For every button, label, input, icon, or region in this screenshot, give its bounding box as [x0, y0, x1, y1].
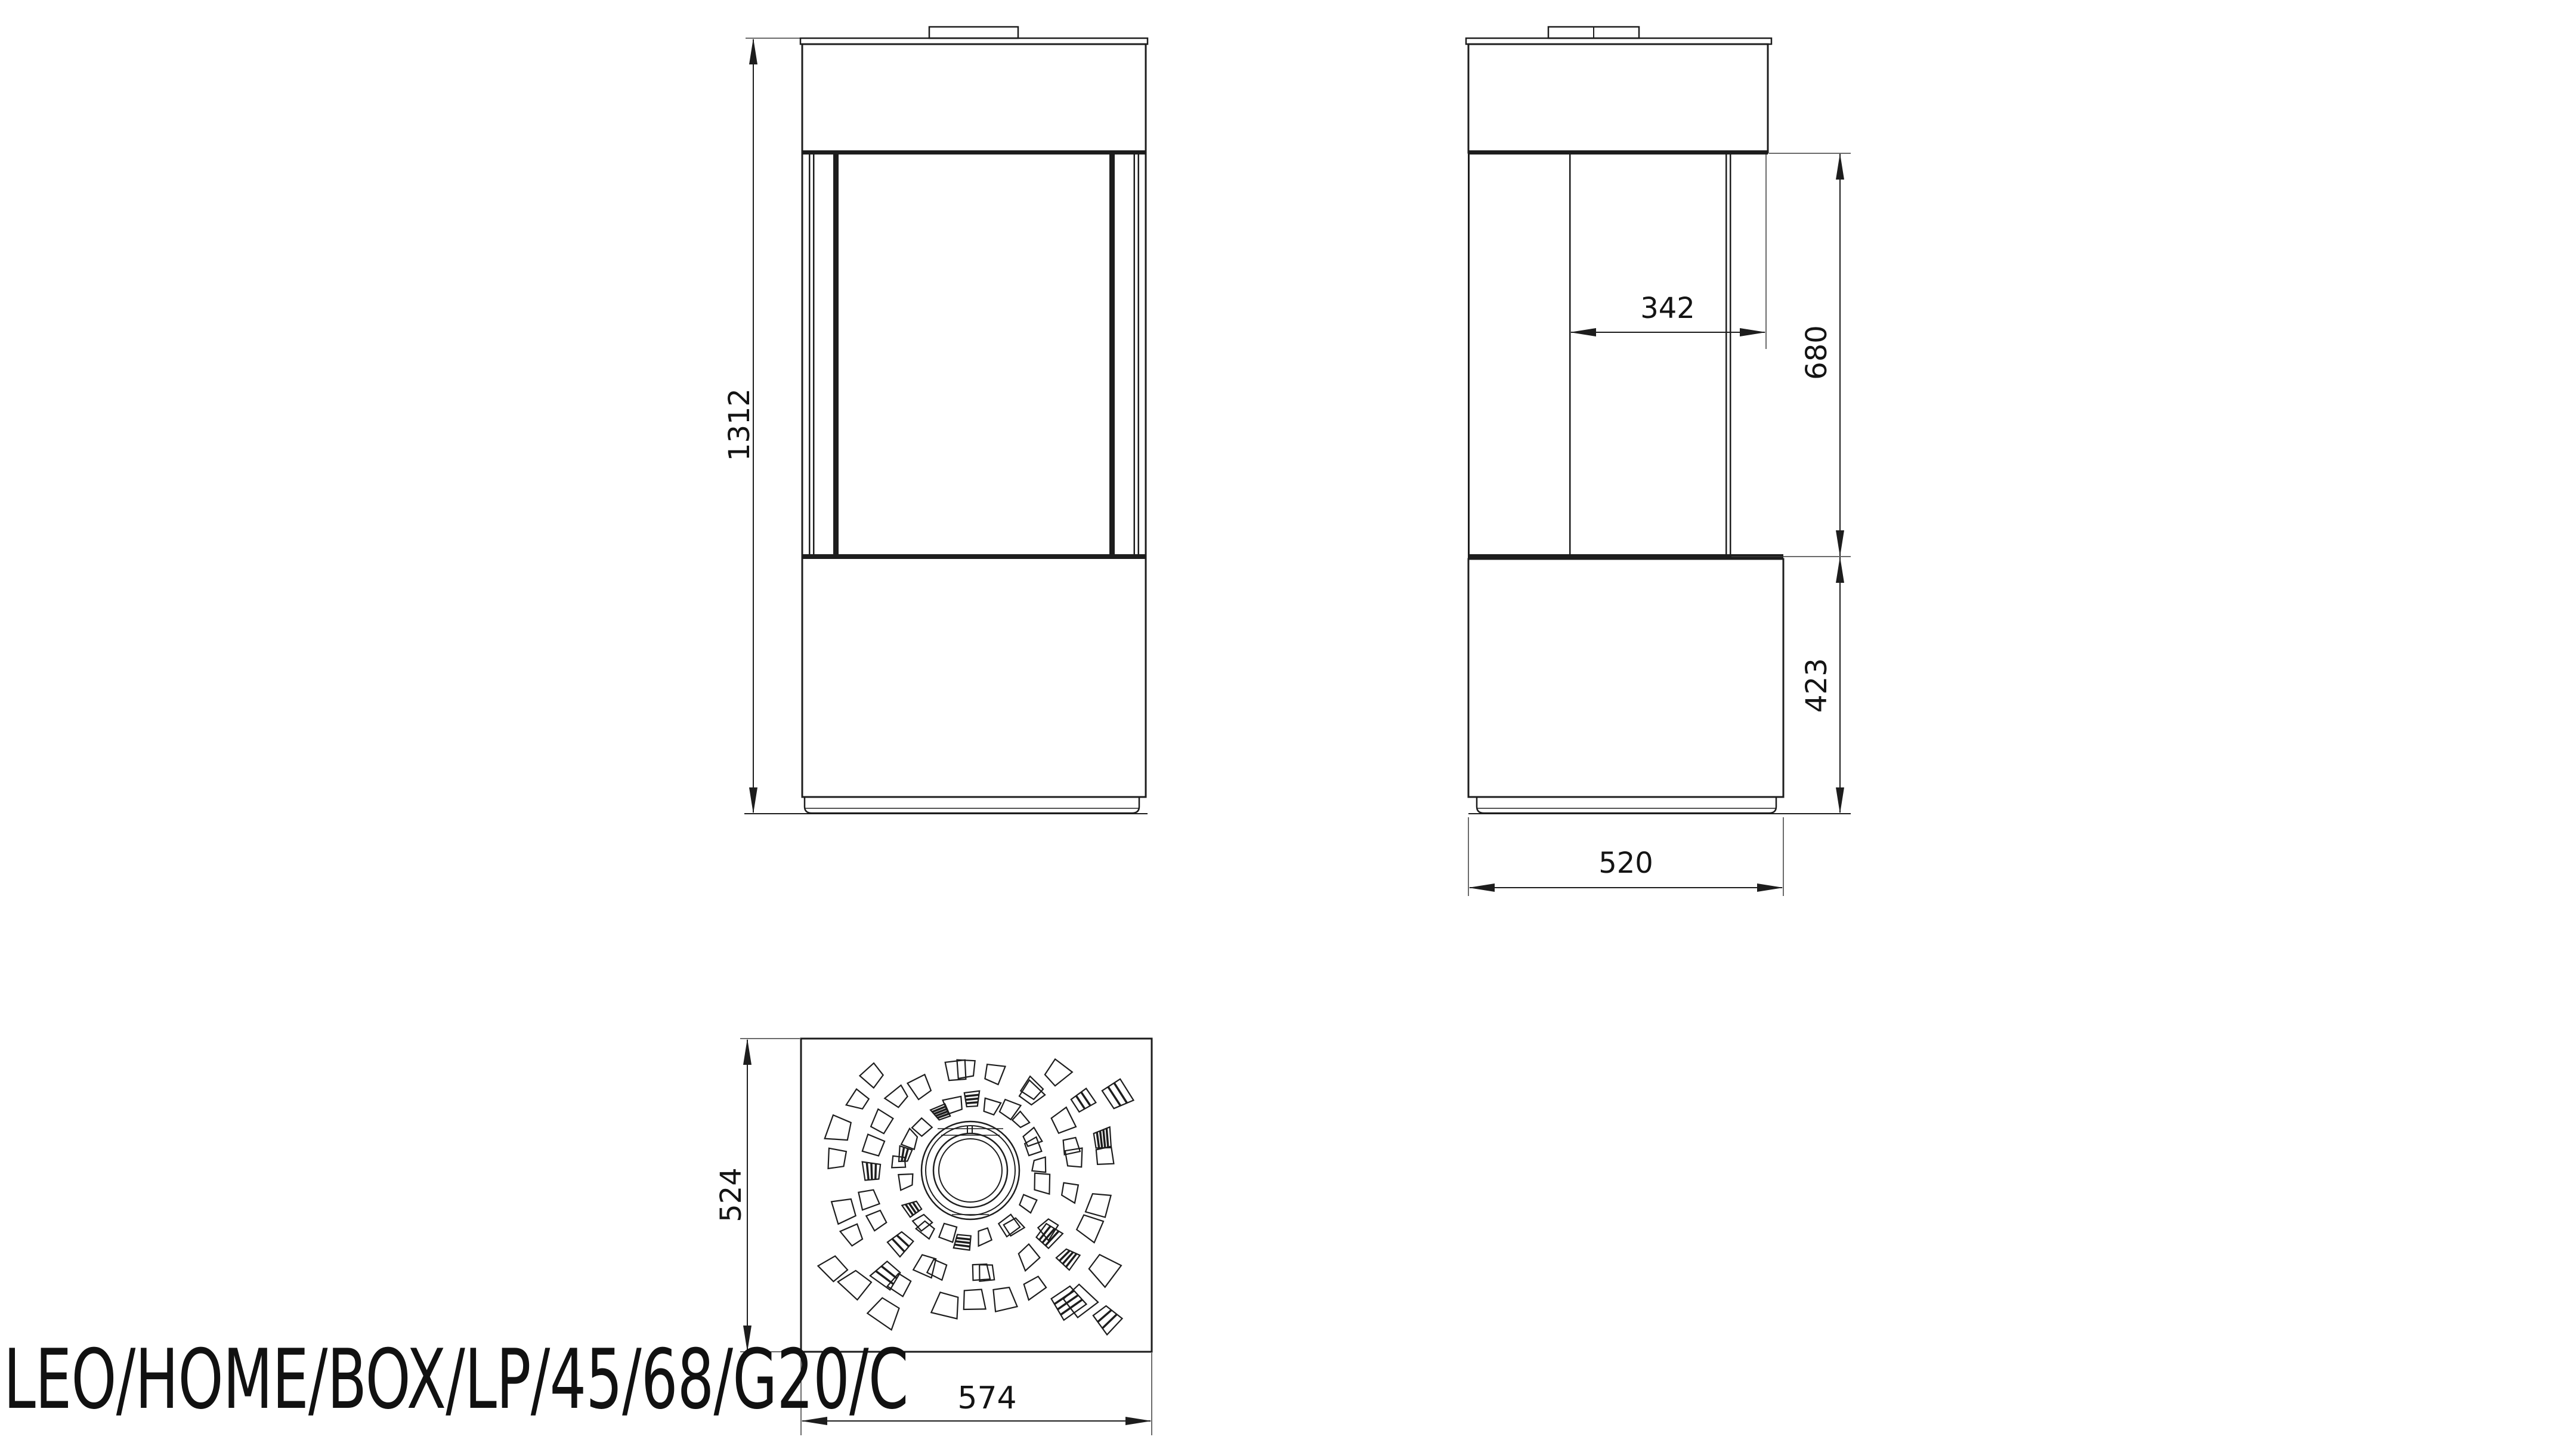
door-frame-strips [809, 155, 1139, 554]
lower-box-side [1468, 559, 1783, 797]
side-view [1466, 27, 1851, 896]
divider-front [803, 150, 1145, 155]
dim-label-base-height: 423 [1802, 658, 1831, 713]
dim-342 [1570, 328, 1766, 336]
upper-box-side [1468, 44, 1768, 153]
divider-side [1469, 150, 1768, 155]
dim-label-glass-height: 680 [1802, 325, 1831, 380]
drawing-sheet: 1312 342 680 423 520 524 574 LEO/HOME/BO… [0, 0, 2576, 1449]
plinth-side [1477, 797, 1776, 813]
dim-520 [1468, 883, 1783, 892]
dim-label-body-depth: 520 [1598, 849, 1653, 878]
perforation-sunburst [818, 1059, 1134, 1334]
flue-collar-front [929, 27, 1018, 38]
flue-outlet-circles [921, 1121, 1019, 1219]
dim-label-top-depth: 524 [717, 1167, 746, 1222]
dim-label-firebox-depth: 342 [1640, 294, 1695, 323]
technical-drawing [0, 0, 2576, 1449]
front-view [744, 27, 1148, 814]
dim-680 [1836, 153, 1844, 557]
dim-label-top-width: 574 [957, 1383, 1016, 1414]
plinth-front [805, 797, 1139, 813]
model-title: LEO/HOME/BOX/LP/45/68/G20/C [4, 1339, 908, 1421]
dim-423 [1836, 557, 1844, 814]
top-plate-outline [801, 1039, 1152, 1352]
door-bottom-front [803, 554, 1145, 559]
body-front [802, 44, 1146, 797]
door-glass-line-side [1569, 155, 1571, 554]
dim-label-overall-height: 1312 [725, 388, 754, 461]
